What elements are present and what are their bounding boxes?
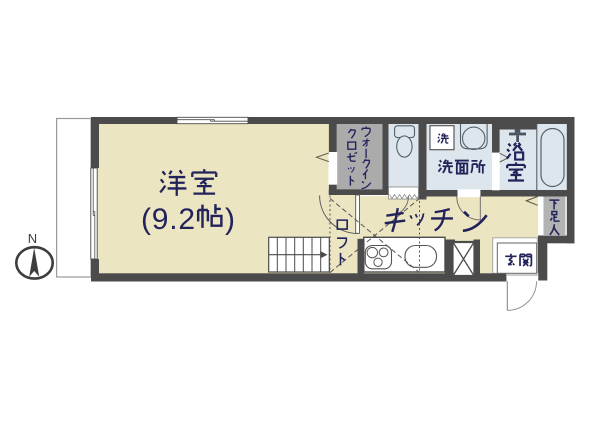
svg-text:): ) (225, 203, 235, 236)
svg-text:(9.2: (9.2 (141, 203, 196, 236)
svg-text:N: N (28, 231, 37, 246)
